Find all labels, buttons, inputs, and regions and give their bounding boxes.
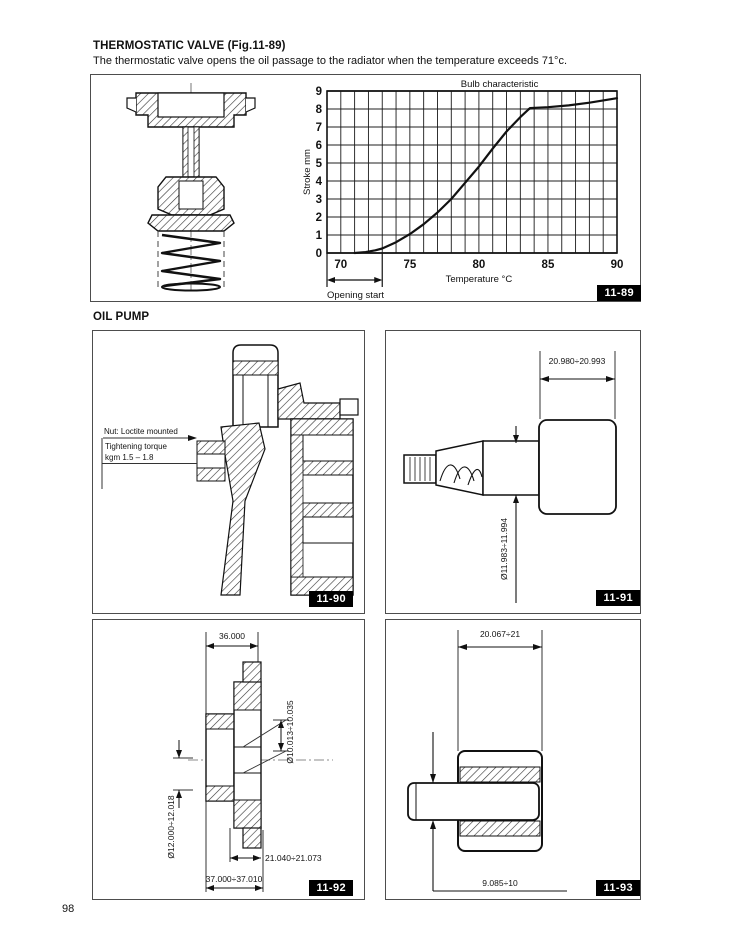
- note-torque-line2: kgm 1.5 – 1.8: [105, 453, 154, 462]
- svg-text:0: 0: [316, 248, 322, 260]
- manual-page: THERMOSTATIC VALVE (Fig.11-89) The therm…: [0, 0, 735, 936]
- svg-text:75: 75: [403, 259, 416, 271]
- svg-text:Bulb characteristic: Bulb characteristic: [461, 79, 539, 90]
- svg-text:85: 85: [542, 259, 555, 271]
- valve-spring: [162, 235, 220, 286]
- svg-text:7: 7: [316, 122, 322, 134]
- figure-11-93: 20.067÷21 9.085÷10 11-93: [385, 619, 641, 900]
- svg-text:70: 70: [334, 259, 347, 271]
- helical-gear-section: [436, 441, 483, 495]
- bulb-characteristic-chart: 01234567897075808590Bulb characteristicT…: [301, 77, 639, 301]
- pump-shaft-drawing: 20.980÷20.993 Ø11.983÷11.994: [386, 331, 640, 613]
- svg-text:Stroke mm: Stroke mm: [302, 149, 313, 195]
- pump-rotor-block: [539, 420, 616, 514]
- pump-gear-drawing: 20.067÷21 9.085÷10: [386, 620, 640, 899]
- section-heading-oil-pump: OIL PUMP: [93, 311, 149, 323]
- thermostatic-valve-drawing: [106, 81, 276, 293]
- nut-section: [197, 441, 225, 454]
- svg-text:80: 80: [473, 259, 486, 271]
- figure-11-91: 20.980÷20.993 Ø11.983÷11.994 11-91: [385, 330, 641, 614]
- figure-label-11-93: 11-93: [596, 880, 640, 896]
- gear-shaft: [408, 783, 539, 820]
- svg-text:9: 9: [316, 86, 322, 98]
- figure-label-11-89: 11-89: [597, 285, 641, 301]
- dim-diameter-label: Ø11.983÷11.994: [499, 518, 509, 580]
- svg-text:1: 1: [316, 230, 323, 242]
- svg-text:5: 5: [316, 158, 323, 170]
- svg-text:4: 4: [316, 176, 323, 188]
- figure-11-89: 01234567897075808590Bulb characteristicT…: [90, 74, 641, 302]
- svg-text:6: 6: [316, 140, 322, 152]
- figure-11-92: 36.000 Ø10.013÷10.035: [92, 619, 365, 900]
- dim-bore-small-label: Ø10.013÷10.035: [285, 700, 295, 764]
- figure-label-11-90: 11-90: [309, 591, 353, 607]
- svg-text:90: 90: [611, 259, 624, 271]
- dim-inner-label: 21.040÷21.073: [265, 853, 322, 863]
- figure-11-90: Nut: Loctite mounted Tightening torque k…: [92, 330, 365, 614]
- svg-text:Opening start: Opening start: [327, 290, 384, 301]
- leader-arrow: [188, 435, 197, 441]
- dim-offset-label: 9.085÷10: [482, 878, 518, 888]
- dim-width-label: 20.980÷20.993: [549, 356, 606, 366]
- dim-bore-large-label: Ø12.000÷12.018: [166, 795, 176, 859]
- note-torque-line1: Tightening torque: [105, 442, 168, 451]
- note-nut: Nut: Loctite mounted: [104, 427, 178, 436]
- figure-label-11-91: 11-91: [596, 590, 640, 606]
- svg-text:8: 8: [316, 104, 323, 116]
- svg-text:3: 3: [316, 194, 322, 206]
- figure-label-11-92: 11-92: [309, 880, 353, 896]
- dim-width-label: 20.067÷21: [480, 629, 520, 639]
- svg-text:2: 2: [316, 212, 322, 224]
- dim-overall-label: 37.000÷37.010: [206, 874, 263, 884]
- thermostatic-description: The thermostatic valve opens the oil pas…: [93, 55, 653, 67]
- pump-flange-drawing: 36.000 Ø10.013÷10.035: [93, 620, 364, 899]
- page-number: 98: [62, 903, 74, 915]
- oil-pump-section-drawing: Nut: Loctite mounted Tightening torque k…: [93, 331, 364, 613]
- dim-top-label: 36.000: [219, 631, 245, 641]
- svg-text:Temperature °C: Temperature °C: [446, 274, 513, 285]
- section-heading-thermostatic-valve: THERMOSTATIC VALVE (Fig.11-89): [93, 40, 286, 52]
